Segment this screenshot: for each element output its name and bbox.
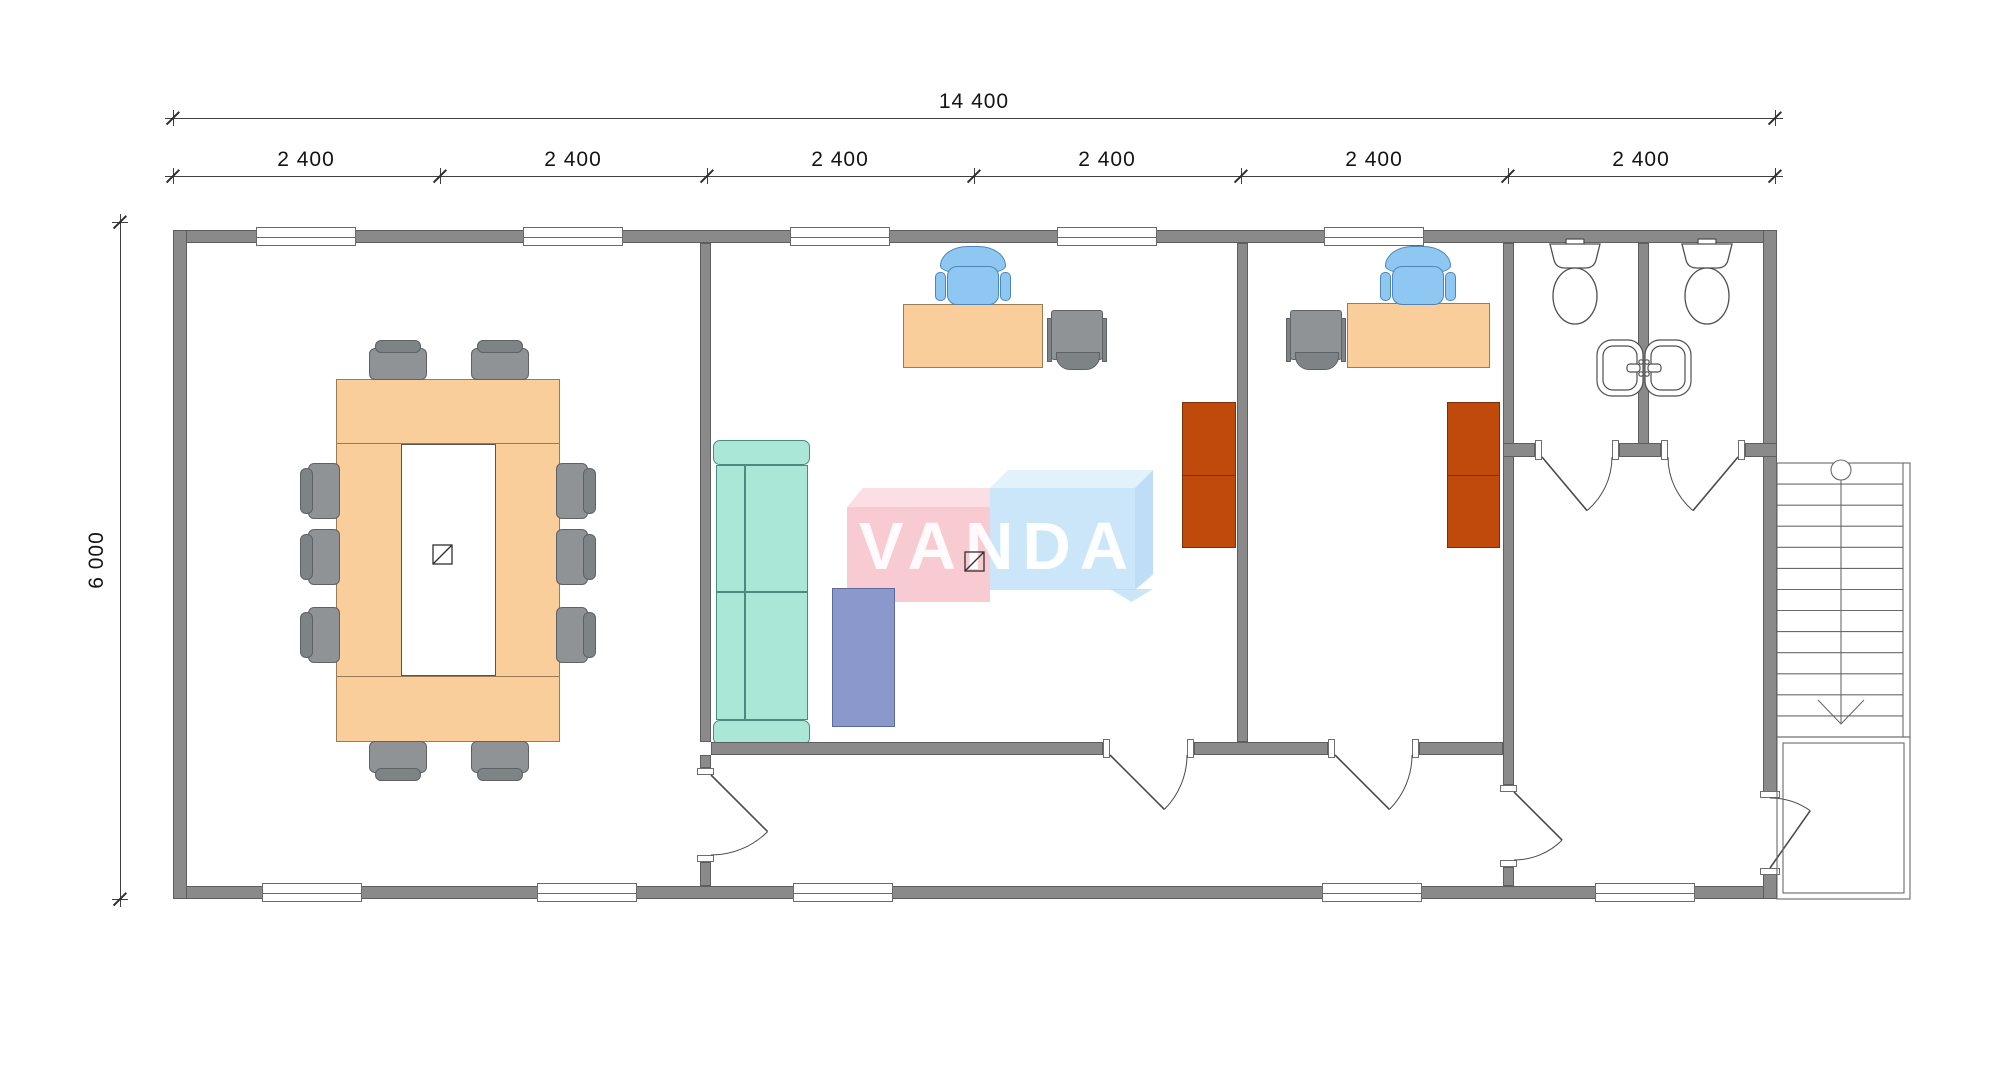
- module-dimension-label-6: 2 400: [1612, 148, 1670, 172]
- door-entrance: [1770, 798, 1810, 868]
- dim-line-overall-height: [120, 214, 121, 907]
- fixture-symbol-2: [965, 552, 984, 571]
- toilet-2: [1682, 239, 1732, 324]
- toilet-1: [1550, 239, 1600, 324]
- door-office-1: [1110, 755, 1187, 809]
- door-office-2: [1335, 755, 1412, 809]
- door-wc-left: [1542, 457, 1612, 511]
- stair-start-circle: [1831, 460, 1851, 480]
- door-hall: [1514, 792, 1562, 860]
- module-dimension-label-4: 2 400: [1078, 148, 1136, 172]
- door-wc-right: [1668, 457, 1738, 511]
- fixture-symbol-1: [433, 545, 452, 564]
- module-dimension-label-2: 2 400: [544, 148, 602, 172]
- floor-plan-canvas: VANDA 14 400 6 000 2 4002 4002 4002 4002…: [0, 0, 2000, 1076]
- door-conference: [711, 775, 768, 855]
- stair-landing: [1777, 737, 1910, 899]
- stair-landing-inner: [1783, 743, 1904, 893]
- module-dimension-label-5: 2 400: [1345, 148, 1403, 172]
- module-dimension-label-3: 2 400: [811, 148, 869, 172]
- staircase: [1777, 460, 1910, 899]
- dim-line-overall-width: [165, 118, 1783, 119]
- module-dimension-label-1: 2 400: [277, 148, 335, 172]
